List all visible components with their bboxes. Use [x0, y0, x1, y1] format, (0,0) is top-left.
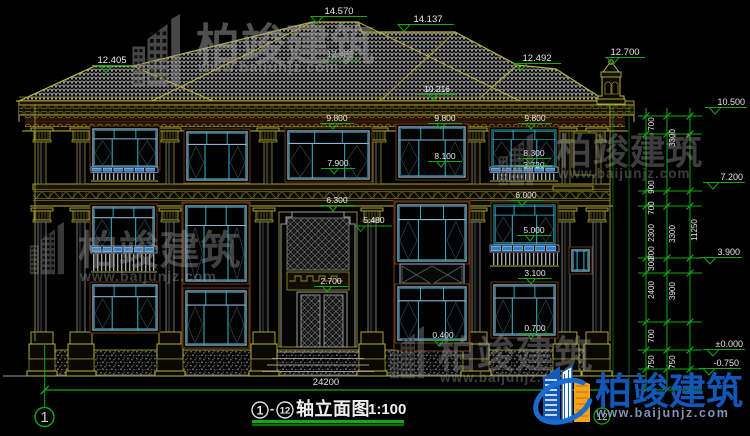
svg-text:12.700: 12.700 — [610, 47, 639, 58]
svg-text:2300: 2300 — [647, 224, 656, 242]
svg-text:10.500: 10.500 — [717, 97, 745, 107]
svg-text:±0.000: ±0.000 — [716, 339, 743, 349]
svg-text:2.700: 2.700 — [320, 276, 342, 286]
svg-text:6.300: 6.300 — [326, 195, 348, 205]
svg-text:750: 750 — [647, 355, 656, 369]
svg-text:700: 700 — [647, 117, 656, 131]
svg-text:3.720: 3.720 — [523, 160, 545, 170]
svg-text:1: 1 — [257, 404, 264, 418]
svg-text:700: 700 — [647, 329, 656, 343]
svg-text:24200: 24200 — [313, 377, 339, 388]
svg-text:14.137: 14.137 — [413, 14, 442, 25]
svg-text:www.baijunjz.com: www.baijunjz.com — [595, 406, 729, 420]
svg-text:300: 300 — [647, 257, 656, 271]
svg-text:5.480: 5.480 — [363, 215, 385, 225]
svg-text:14.570: 14.570 — [324, 6, 353, 17]
svg-text:0.700: 0.700 — [524, 323, 546, 333]
svg-text:9.800: 9.800 — [524, 113, 546, 123]
svg-text:3.900: 3.900 — [717, 247, 740, 257]
svg-text:2400: 2400 — [647, 281, 656, 299]
svg-text:5.000: 5.000 — [523, 225, 545, 235]
svg-text:9.800: 9.800 — [434, 113, 456, 123]
svg-text:www.baijunjz.com: www.baijunjz.com — [197, 60, 339, 76]
svg-text:700: 700 — [647, 201, 656, 215]
svg-text:轴立面图: 轴立面图 — [296, 398, 370, 419]
svg-text:10.216: 10.216 — [424, 84, 450, 94]
svg-text:7.900: 7.900 — [327, 158, 349, 168]
svg-text:8.100: 8.100 — [434, 151, 456, 161]
svg-text:3.100: 3.100 — [524, 268, 546, 278]
svg-text:-: - — [270, 401, 274, 416]
svg-text:750: 750 — [668, 355, 677, 369]
svg-text:9.800: 9.800 — [326, 113, 348, 123]
svg-text:3900: 3900 — [668, 282, 677, 300]
svg-text:1:100: 1:100 — [368, 401, 406, 418]
svg-text:7.200: 7.200 — [720, 172, 743, 182]
svg-text:8.300: 8.300 — [523, 148, 545, 158]
svg-text:12: 12 — [280, 406, 291, 417]
svg-text:12.405: 12.405 — [97, 55, 126, 66]
svg-text:12.492: 12.492 — [522, 53, 551, 64]
svg-text:6.000: 6.000 — [515, 190, 537, 200]
svg-text:柏竣建筑: 柏竣建筑 — [78, 229, 241, 273]
svg-text:11250: 11250 — [690, 219, 699, 241]
svg-text:1: 1 — [40, 409, 48, 426]
svg-text:3300: 3300 — [668, 225, 677, 243]
svg-text:www.baijunjz.com: www.baijunjz.com — [557, 166, 691, 181]
svg-text:-0.750: -0.750 — [713, 358, 739, 368]
svg-text:900: 900 — [647, 180, 656, 194]
svg-text:www.baijunjz.com: www.baijunjz.com — [79, 268, 217, 284]
